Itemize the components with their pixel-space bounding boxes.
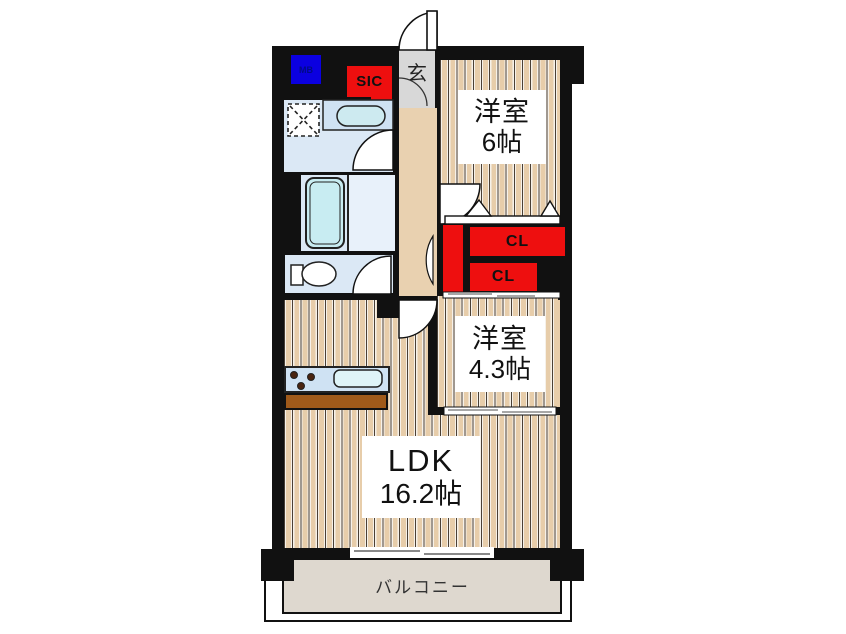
entrance-door-swing xyxy=(399,11,437,50)
hallway-door-arc xyxy=(426,236,433,284)
closet-doors-43 xyxy=(443,292,560,298)
sliding-door xyxy=(444,407,556,415)
balcony-window xyxy=(350,547,494,558)
fixtures-overlay xyxy=(0,0,846,634)
washing-machine-space xyxy=(288,104,319,136)
washroom-door-swing xyxy=(353,130,393,170)
stove-burners xyxy=(291,372,315,390)
kitchen-sink xyxy=(334,370,382,387)
ldk-door-swing xyxy=(399,300,437,338)
entrance-inner-door-arc xyxy=(399,78,427,106)
toilet-door-swing xyxy=(353,256,391,294)
washbasin xyxy=(323,100,393,130)
bathtub xyxy=(306,178,344,248)
floorplan-canvas: バルコニー 玄 CL CL MB SIC 洋室 6帖 洋室 xyxy=(0,0,846,634)
toilet xyxy=(291,262,336,286)
